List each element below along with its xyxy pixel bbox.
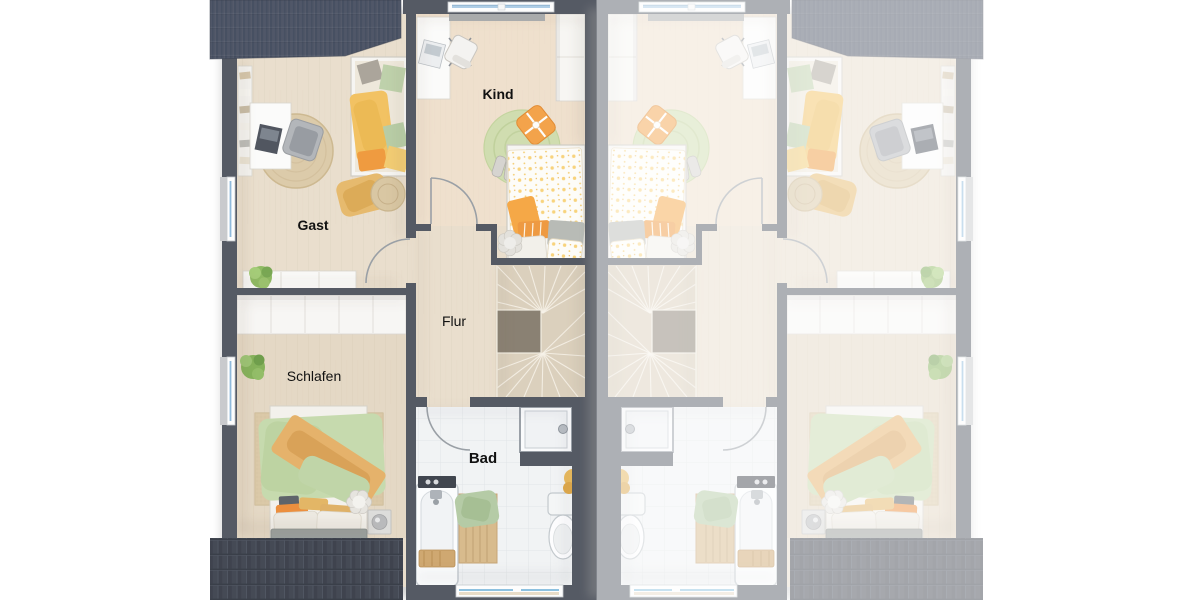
svg-text:Gast: Gast — [297, 217, 328, 233]
svg-text:Schlafen: Schlafen — [287, 368, 341, 384]
svg-text:Kind: Kind — [482, 86, 513, 102]
svg-text:Flur: Flur — [442, 313, 466, 329]
svg-text:Bad: Bad — [469, 450, 497, 467]
